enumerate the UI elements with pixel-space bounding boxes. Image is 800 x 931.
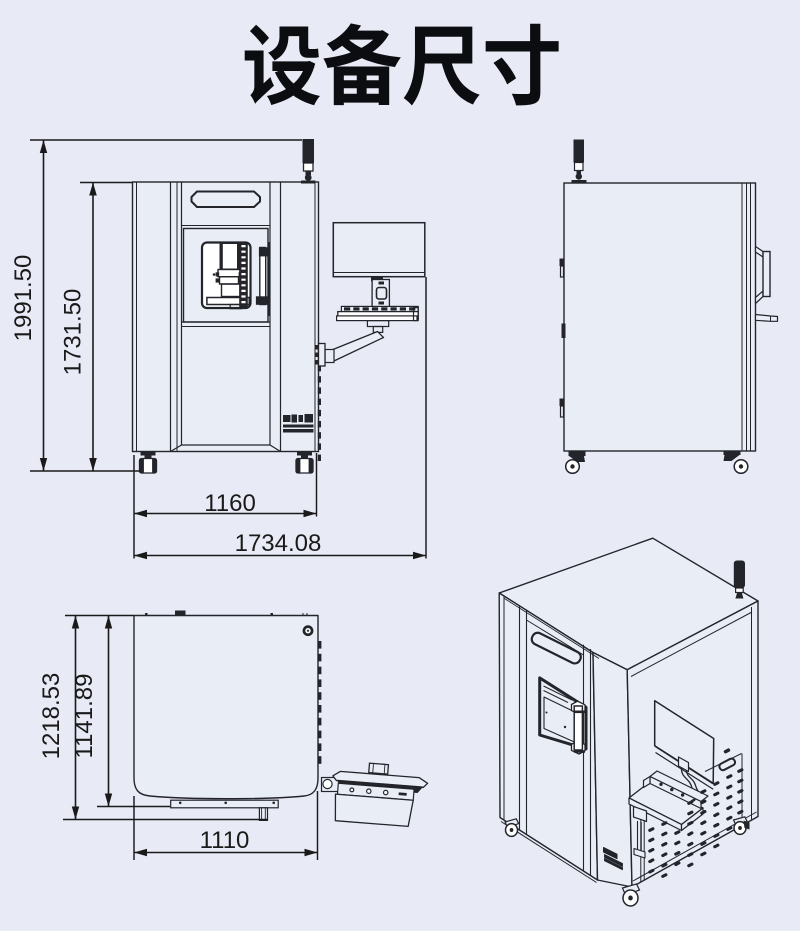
svg-text:1110: 1110 — [200, 827, 250, 854]
svg-text:1218.53: 1218.53 — [38, 673, 65, 760]
svg-text:1991.50: 1991.50 — [10, 255, 37, 342]
svg-text:1731.50: 1731.50 — [60, 289, 87, 376]
svg-text:1734.08: 1734.08 — [235, 530, 322, 557]
svg-text:1160: 1160 — [204, 490, 256, 517]
svg-text:1141.89: 1141.89 — [71, 674, 98, 759]
